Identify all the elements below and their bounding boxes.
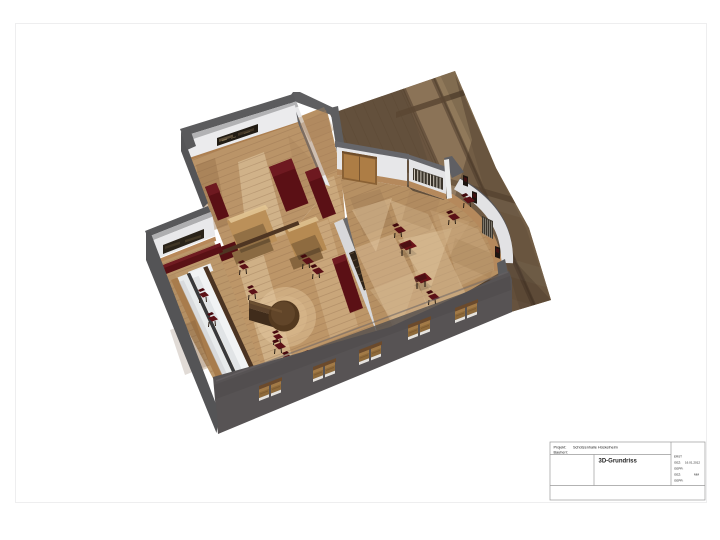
svg-text:MM: MM: [694, 473, 699, 477]
svg-text:GEPR:: GEPR:: [674, 479, 684, 483]
svg-text:Schützenhalle Hückelheim: Schützenhalle Hückelheim: [573, 445, 618, 449]
svg-text:16.01.2012: 16.01.2012: [685, 461, 700, 465]
svg-text:ERST: ERST: [674, 455, 682, 459]
svg-text:GEZ:: GEZ:: [674, 473, 681, 477]
svg-text:3D-Grundriss: 3D-Grundriss: [599, 459, 638, 465]
svg-text:GEPR:: GEPR:: [674, 467, 684, 471]
svg-text:Bauherr:: Bauherr:: [554, 450, 569, 454]
svg-text:GEZ:: GEZ:: [674, 461, 681, 465]
svg-text:Projekt:: Projekt:: [554, 445, 567, 449]
